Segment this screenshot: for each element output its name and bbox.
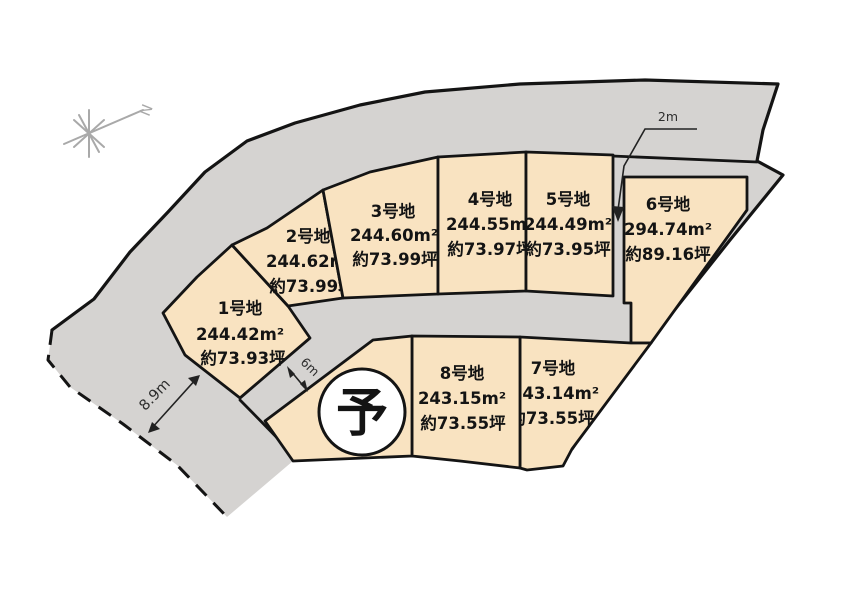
plot-6-label: 6号地 xyxy=(646,194,691,214)
north-compass: N xyxy=(64,102,157,157)
plot-7-area: 243.14m² xyxy=(511,384,599,403)
plot-2-label: 2号地 xyxy=(286,226,331,246)
plot-3-area: 244.60m² xyxy=(350,226,438,245)
compass-needle xyxy=(64,110,143,144)
plot-8-area: 243.15m² xyxy=(418,389,506,408)
plot-6-tsubo: 約89.16坪 xyxy=(625,244,711,264)
plot-4-tsubo: 約73.97坪 xyxy=(447,239,533,259)
plot-5: 5号地 244.49m² 約73.95坪 xyxy=(524,152,613,296)
plot-7: 7号地 243.14m² 約73.55坪 xyxy=(509,337,651,470)
plot-7-tsubo: 約73.55坪 xyxy=(509,408,595,428)
plot-4-label: 4号地 xyxy=(468,189,513,209)
plot-5-area: 244.49m² xyxy=(524,215,612,234)
plot-7-shape xyxy=(520,337,651,470)
reserved-mark: 予 xyxy=(336,384,388,444)
plot-6: 6号地 294.74m² 約89.16坪 xyxy=(624,177,747,343)
plot-8: 8号地 243.15m² 約73.55坪 xyxy=(412,336,520,468)
site-plan-svg: 1号地 244.42m² 約73.93坪 2号地 244.62m² 約73.99… xyxy=(0,0,841,595)
plot-1-tsubo: 約73.93坪 xyxy=(200,348,286,368)
plot-1-area: 244.42m² xyxy=(196,325,284,344)
compass-north-label: N xyxy=(136,102,157,119)
plot-6-area: 294.74m² xyxy=(624,220,712,239)
dimension-2m-label: 2m xyxy=(658,109,678,124)
plot-4: 4号地 244.55m² 約73.97坪 xyxy=(438,152,534,294)
plot-8-tsubo: 約73.55坪 xyxy=(420,413,506,433)
plot-1-label: 1号地 xyxy=(218,298,263,318)
plot-5-label: 5号地 xyxy=(546,189,591,209)
plot-4-area: 244.55m² xyxy=(446,215,534,234)
plot-3-label: 3号地 xyxy=(371,201,416,221)
plot-5-tsubo: 約73.95坪 xyxy=(525,239,611,259)
compass-star-icon xyxy=(74,110,104,157)
plot-8-label: 8号地 xyxy=(440,363,485,383)
plot-3-tsubo: 約73.99坪 xyxy=(352,249,438,269)
plot-7-label: 7号地 xyxy=(531,358,576,378)
land-plot-map: 1号地 244.42m² 約73.93坪 2号地 244.62m² 約73.99… xyxy=(0,0,841,595)
